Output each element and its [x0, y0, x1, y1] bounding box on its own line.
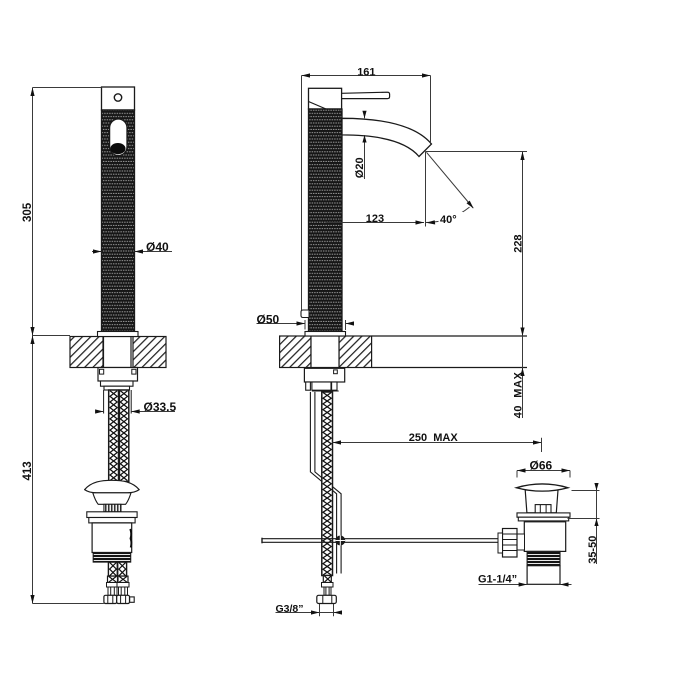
svg-text:161: 161	[357, 67, 375, 79]
svg-text:Ø50: Ø50	[257, 312, 280, 326]
svg-text:Ø20: Ø20	[354, 157, 366, 178]
svg-text:413: 413	[22, 461, 34, 480]
svg-text:250 MAX: 250 MAX	[409, 432, 459, 444]
svg-text:Ø66: Ø66	[530, 459, 553, 473]
svg-text:228: 228	[513, 234, 525, 252]
svg-text:305: 305	[22, 202, 34, 222]
svg-text:40°: 40°	[440, 214, 457, 226]
svg-text:G1-1/4”: G1-1/4”	[478, 574, 517, 586]
svg-text:123: 123	[366, 213, 384, 225]
svg-text:Ø40: Ø40	[146, 240, 169, 254]
svg-text:40 MAX: 40 MAX	[513, 372, 525, 419]
svg-text:G3/8”: G3/8”	[276, 603, 304, 615]
svg-text:Ø33.5: Ø33.5	[144, 400, 177, 414]
svg-text:35-50: 35-50	[587, 536, 599, 564]
